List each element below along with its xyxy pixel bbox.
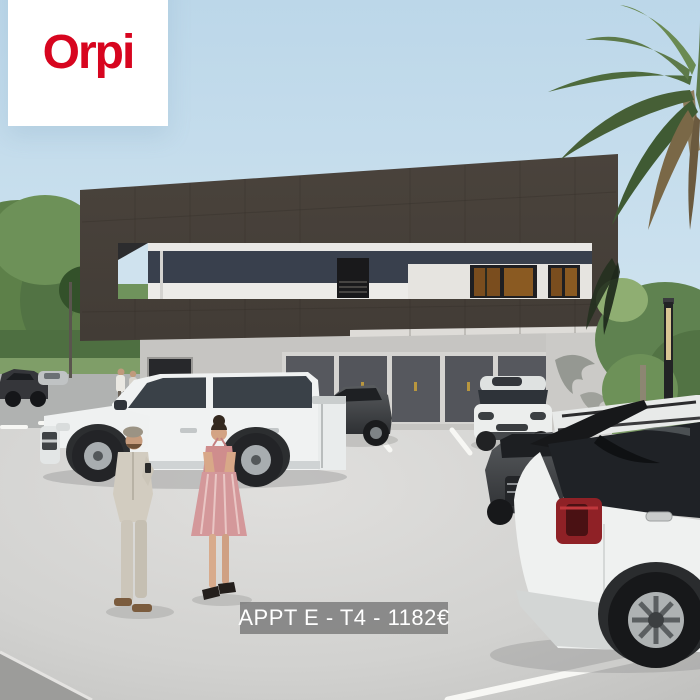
listing-photo: Orpi APPT E - T4 - 1182€ — [0, 0, 700, 700]
light-bollard — [663, 298, 674, 404]
balcony-opening — [118, 243, 592, 299]
utility-pole — [69, 282, 72, 378]
wood-window-a — [470, 265, 537, 298]
louver-door — [337, 258, 369, 298]
wood-window-b — [548, 265, 580, 298]
orpi-logo: Orpi — [8, 0, 168, 126]
orpi-logo-text: Orpi — [43, 29, 134, 77]
road-silver-car — [38, 371, 68, 385]
listing-caption: APPT E - T4 - 1182€ — [240, 602, 448, 634]
